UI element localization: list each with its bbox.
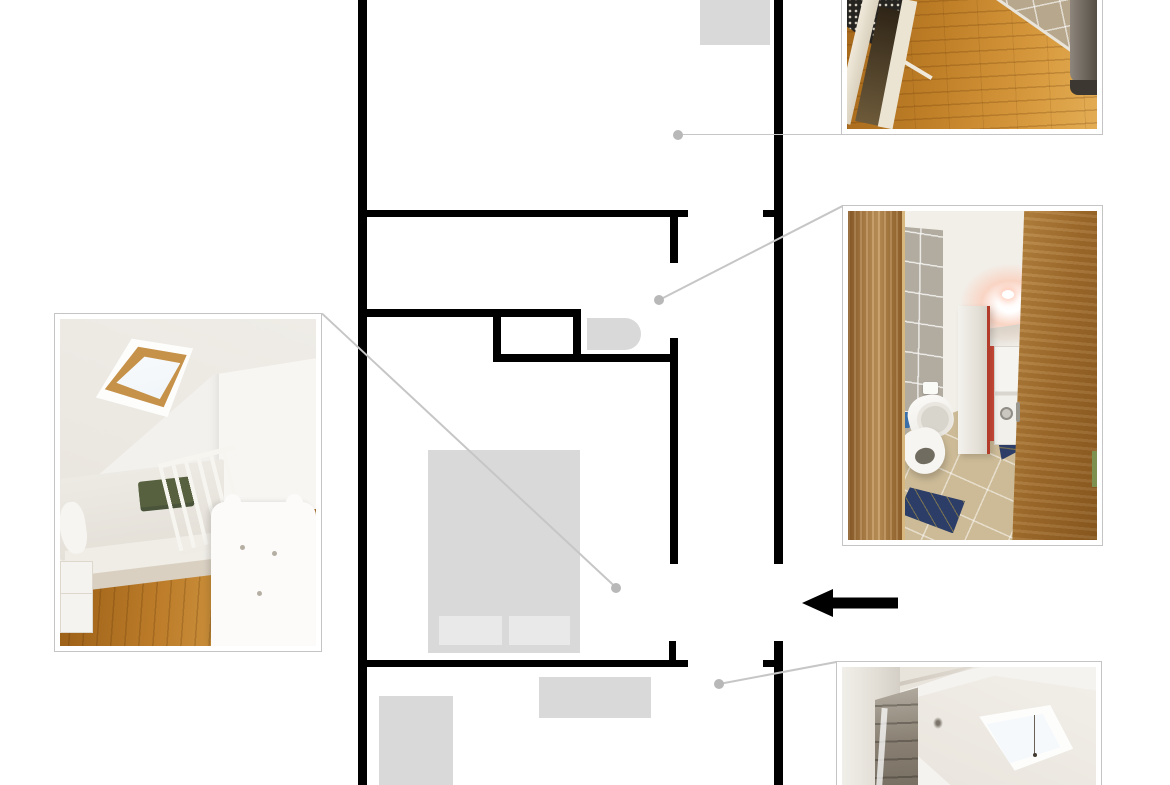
bedroom-crib bbox=[211, 502, 316, 646]
bedroom-nightstand bbox=[60, 561, 93, 633]
wall-lower-wall-left bbox=[358, 660, 688, 667]
fixture-sink bbox=[587, 318, 641, 350]
wall-bath-wall-upper bbox=[358, 309, 581, 317]
crib-bear-ear-left bbox=[224, 494, 241, 511]
flush-plate bbox=[923, 382, 938, 394]
wall-hall-wall-right bbox=[763, 210, 774, 217]
skylight-cord-knob bbox=[1033, 753, 1037, 757]
plant-sliver bbox=[1092, 451, 1097, 487]
washer-door bbox=[1000, 407, 1013, 420]
bedroom-photo bbox=[54, 313, 322, 652]
fridge bbox=[1070, 0, 1098, 83]
left-arrow-icon bbox=[802, 589, 898, 617]
wall-outer-left bbox=[358, 0, 367, 785]
floor-plan-canvas bbox=[0, 0, 1170, 785]
fixture-pillow-right bbox=[509, 616, 570, 645]
bedroom-photo-image bbox=[60, 319, 316, 646]
bathroom-cabinet bbox=[958, 306, 991, 454]
crib-bear-ear-right bbox=[286, 494, 303, 511]
wall-outer-right-upper bbox=[774, 0, 783, 564]
wall-bath-door-stub bbox=[670, 210, 678, 263]
hallway-photo-image bbox=[847, 0, 1097, 129]
open-door-left bbox=[848, 211, 905, 540]
skylight-room-photo bbox=[836, 661, 1102, 785]
wall-lower-wall-right bbox=[763, 660, 774, 667]
leader-line-hallway bbox=[678, 134, 842, 136]
skylight-cord bbox=[1034, 715, 1036, 754]
hallway-photo bbox=[841, 0, 1103, 135]
entry-direction-arrow bbox=[802, 589, 898, 617]
crib-bear-eye-right bbox=[272, 551, 277, 556]
wall-hall-wall-left bbox=[358, 210, 688, 217]
crib-bear-eye-left bbox=[240, 545, 245, 550]
callout-dot-bedroom bbox=[611, 583, 621, 593]
fixture-top-cabinet bbox=[700, 0, 770, 45]
callout-dot-bathroom bbox=[654, 295, 664, 305]
wall-decor bbox=[933, 717, 943, 729]
fridge-base bbox=[1070, 80, 1098, 95]
skylight-room-photo-image bbox=[842, 667, 1096, 785]
leader-line-bathroom bbox=[659, 205, 843, 300]
fixture-sideboard bbox=[539, 677, 651, 718]
fixture-storage-box bbox=[379, 696, 453, 785]
callout-dot-hallway bbox=[673, 130, 683, 140]
crib-bear-nose bbox=[257, 591, 262, 596]
wall-bedroom-divider bbox=[670, 338, 678, 564]
door-handle bbox=[1016, 402, 1020, 422]
wooden-door-right bbox=[1012, 211, 1097, 540]
wall-outer-right-lower bbox=[774, 641, 783, 785]
wall-lower-door-stub bbox=[669, 641, 676, 667]
bathroom-photo bbox=[842, 205, 1103, 546]
callout-dot-skylight_room bbox=[714, 679, 724, 689]
wall-bath-wall-lower bbox=[493, 354, 678, 362]
fixture-pillow-left bbox=[439, 616, 502, 645]
bathroom-photo-image bbox=[848, 211, 1097, 540]
